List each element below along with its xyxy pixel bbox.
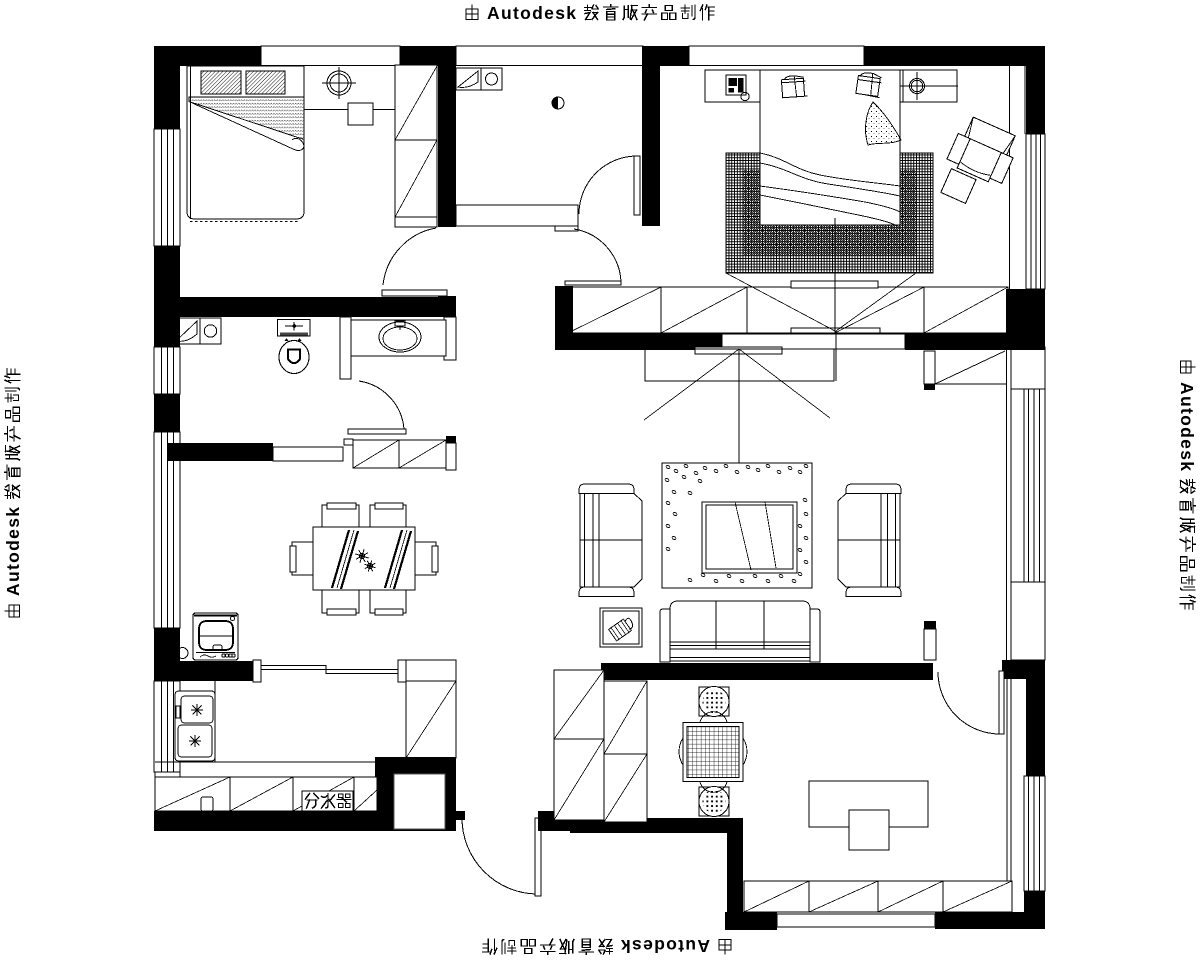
svg-text:Autodesk: Autodesk <box>3 507 23 596</box>
svg-text:Autodesk: Autodesk <box>621 936 710 956</box>
svg-text:Autodesk: Autodesk <box>1177 382 1197 471</box>
svg-text:Autodesk: Autodesk <box>487 3 576 23</box>
